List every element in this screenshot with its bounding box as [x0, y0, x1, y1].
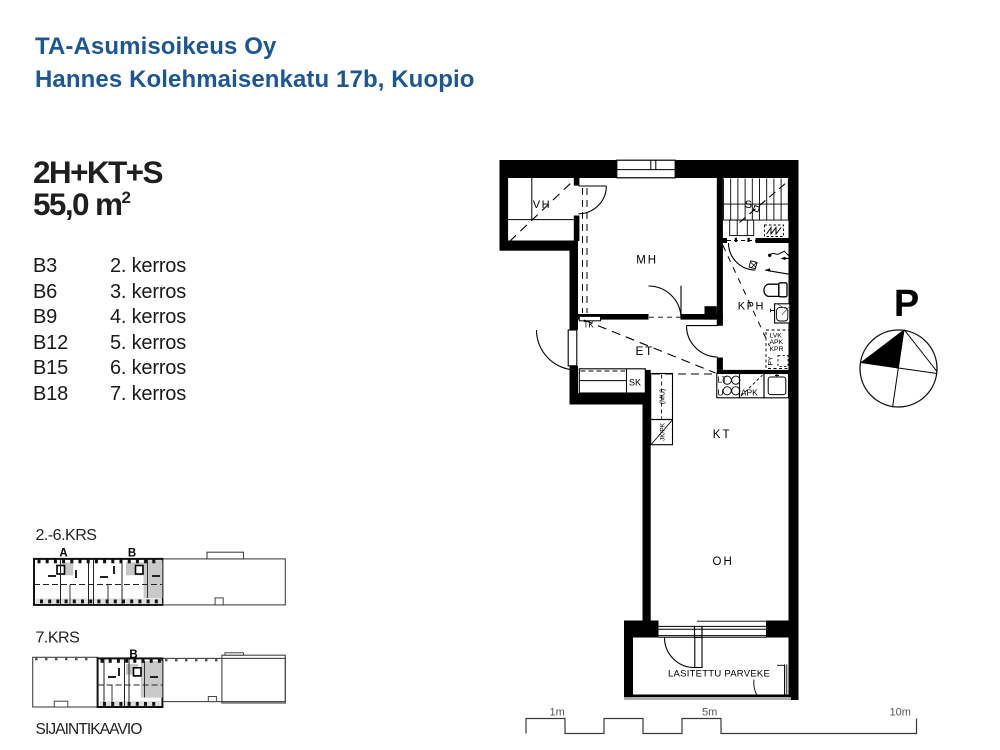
svg-text:B: B — [128, 548, 136, 560]
svg-text:VH: VH — [533, 199, 551, 211]
svg-text:U: U — [718, 388, 724, 398]
svg-text:APK: APK — [741, 388, 758, 398]
svg-text:KPR: KPR — [770, 346, 784, 353]
svg-text:MH: MH — [636, 255, 658, 267]
svg-text:S: S — [745, 199, 753, 211]
svg-text:KT: KT — [713, 429, 732, 441]
svg-text:SK: SK — [629, 378, 641, 388]
svg-text:LASITETTU PARVEKE: LASITETTU PARVEKE — [668, 668, 770, 679]
svg-text:A: A — [59, 548, 67, 560]
svg-text:LT: LT — [718, 375, 727, 385]
svg-text:SIJAINTIKAAVIO: SIJAINTIKAAVIO — [36, 721, 143, 738]
svg-text:10m: 10m — [890, 707, 911, 719]
svg-text:KPH: KPH — [738, 301, 765, 313]
svg-text:2.-6.KRS: 2.-6.KRS — [36, 527, 97, 544]
svg-text:5m: 5m — [702, 707, 717, 719]
svg-text:JK/PK: JK/PK — [660, 422, 667, 441]
svg-text:OH: OH — [713, 556, 734, 568]
svg-text:P: P — [894, 283, 919, 325]
svg-text:7.KRS: 7.KRS — [36, 630, 80, 647]
svg-text:B: B — [129, 649, 137, 661]
svg-text:ET: ET — [636, 344, 654, 358]
svg-text:TK: TK — [584, 321, 595, 330]
svg-text:PY: PY — [768, 356, 775, 366]
svg-text:(MU): (MU) — [660, 389, 667, 405]
svg-text:1m: 1m — [550, 707, 565, 719]
